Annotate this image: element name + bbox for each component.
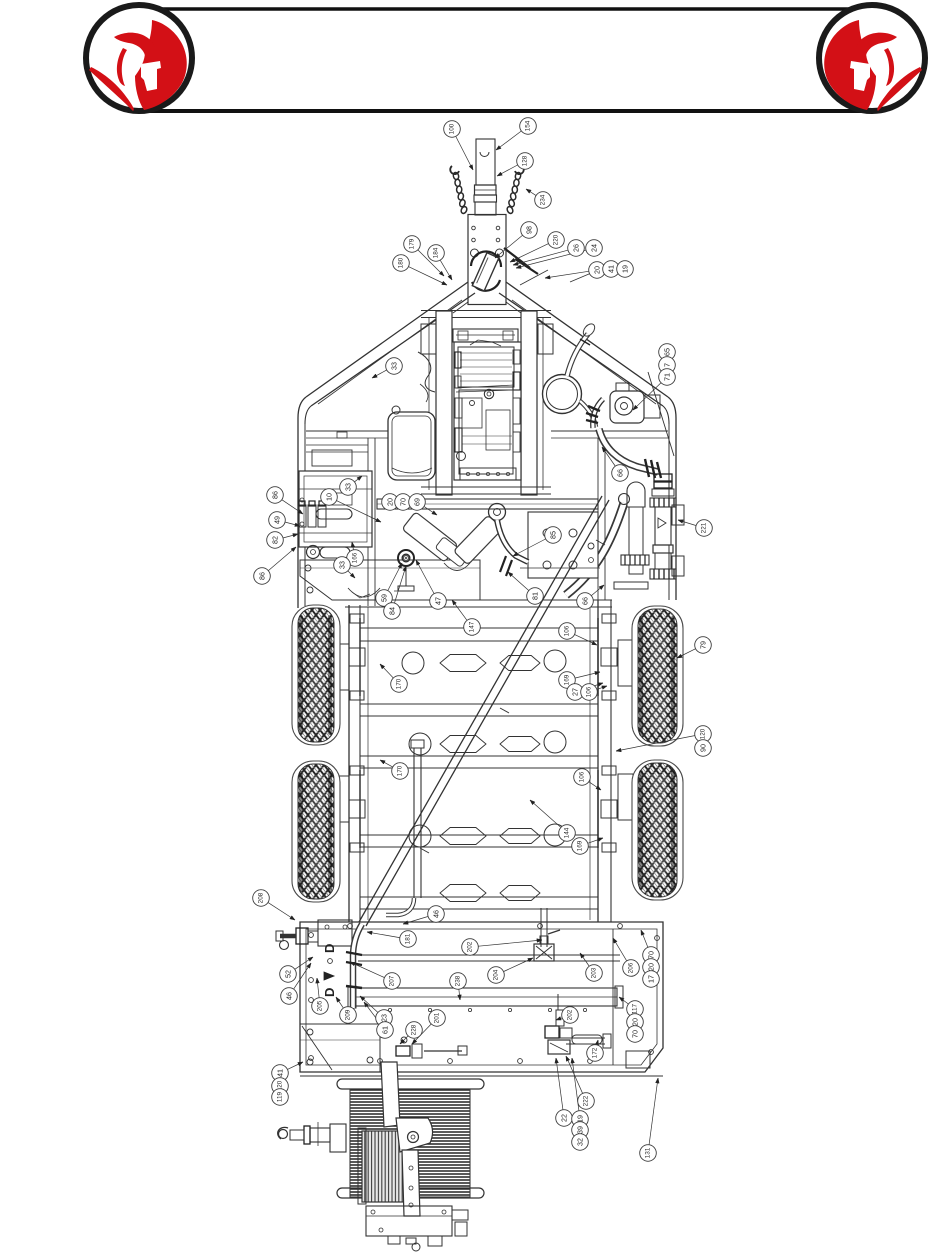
svg-text:209: 209: [345, 1009, 352, 1020]
svg-text:33: 33: [344, 483, 353, 491]
svg-text:46: 46: [285, 992, 294, 1000]
svg-text:170: 170: [397, 765, 404, 776]
svg-text:59: 59: [380, 594, 389, 602]
svg-text:169: 169: [564, 674, 571, 685]
svg-text:85: 85: [549, 531, 558, 539]
svg-text:33: 33: [390, 362, 399, 370]
svg-text:131: 131: [645, 1147, 652, 1158]
svg-text:117: 117: [632, 1003, 639, 1014]
svg-text:81: 81: [531, 592, 540, 600]
svg-text:20: 20: [386, 498, 395, 506]
svg-text:221: 221: [701, 522, 708, 533]
svg-text:71: 71: [663, 373, 672, 381]
svg-text:7: 7: [663, 363, 672, 367]
svg-text:222: 222: [583, 1095, 590, 1106]
svg-text:90: 90: [699, 744, 708, 752]
svg-text:52: 52: [284, 970, 293, 978]
svg-text:33: 33: [338, 561, 347, 569]
svg-text:204: 204: [493, 969, 500, 980]
svg-text:106: 106: [564, 625, 571, 636]
svg-text:234: 234: [540, 194, 547, 205]
svg-text:207: 207: [389, 975, 396, 986]
svg-text:26: 26: [572, 244, 581, 252]
svg-text:154: 154: [525, 120, 532, 131]
svg-text:179: 179: [409, 238, 416, 249]
svg-text:20: 20: [631, 1018, 640, 1026]
svg-text:17: 17: [647, 975, 656, 983]
svg-text:203: 203: [591, 967, 598, 978]
svg-text:106: 106: [579, 771, 586, 782]
svg-text:206: 206: [628, 962, 635, 973]
svg-text:180: 180: [398, 257, 405, 268]
svg-text:23: 23: [380, 1014, 389, 1022]
svg-text:70: 70: [399, 498, 408, 506]
svg-text:220: 220: [553, 234, 560, 245]
svg-text:82: 82: [271, 536, 280, 544]
svg-text:184: 184: [433, 247, 440, 258]
svg-text:39: 39: [576, 1126, 585, 1134]
svg-text:65: 65: [663, 348, 672, 356]
svg-text:20: 20: [593, 266, 602, 274]
svg-text:100: 100: [449, 123, 456, 134]
svg-text:169: 169: [577, 840, 584, 851]
svg-text:201: 201: [434, 1012, 441, 1023]
svg-text:202: 202: [467, 941, 474, 952]
svg-text:205: 205: [317, 1000, 324, 1011]
svg-text:208: 208: [258, 892, 265, 903]
svg-text:120: 120: [700, 728, 707, 739]
svg-text:170: 170: [396, 678, 403, 689]
svg-text:66: 66: [616, 469, 625, 477]
svg-text:86: 86: [258, 572, 267, 580]
svg-text:98: 98: [525, 226, 534, 234]
svg-text:32: 32: [576, 1138, 585, 1146]
svg-text:49: 49: [273, 516, 282, 524]
svg-text:10: 10: [325, 493, 334, 501]
svg-text:D: D: [322, 944, 337, 953]
svg-text:27: 27: [571, 688, 580, 696]
svg-text:20: 20: [647, 963, 656, 971]
svg-text:24: 24: [590, 244, 599, 252]
svg-text:119: 119: [277, 1091, 284, 1102]
svg-text:D: D: [322, 988, 337, 997]
svg-text:41: 41: [276, 1069, 285, 1077]
svg-text:202: 202: [567, 1009, 574, 1020]
svg-text:144: 144: [564, 827, 571, 838]
svg-text:228: 228: [411, 1024, 418, 1035]
svg-text:47: 47: [434, 597, 443, 605]
svg-text:70: 70: [631, 1030, 640, 1038]
svg-text:181: 181: [405, 933, 412, 944]
svg-text:238: 238: [455, 975, 462, 986]
svg-text:79: 79: [699, 641, 708, 649]
svg-text:147: 147: [469, 621, 476, 632]
svg-text:128: 128: [522, 155, 529, 166]
svg-text:172: 172: [592, 1047, 599, 1058]
svg-text:19: 19: [621, 265, 630, 273]
svg-text:86: 86: [271, 491, 280, 499]
svg-text:41: 41: [607, 265, 616, 273]
svg-text:46: 46: [432, 910, 441, 918]
svg-text:166: 166: [352, 552, 359, 563]
svg-text:69: 69: [413, 498, 422, 506]
svg-text:106: 106: [586, 686, 593, 697]
svg-text:66: 66: [581, 597, 590, 605]
svg-text:84: 84: [388, 607, 397, 615]
svg-text:22: 22: [560, 1114, 569, 1122]
svg-text:70: 70: [647, 951, 656, 959]
svg-text:61: 61: [381, 1026, 390, 1034]
